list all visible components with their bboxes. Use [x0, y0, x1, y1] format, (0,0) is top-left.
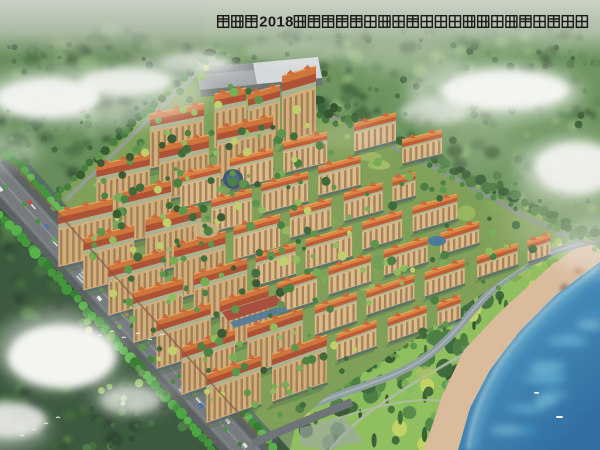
svg-text:0: 0 — [268, 15, 276, 31]
svg-text:1: 1 — [277, 15, 285, 31]
svg-text:2: 2 — [259, 15, 267, 31]
svg-text:8: 8 — [285, 15, 293, 31]
